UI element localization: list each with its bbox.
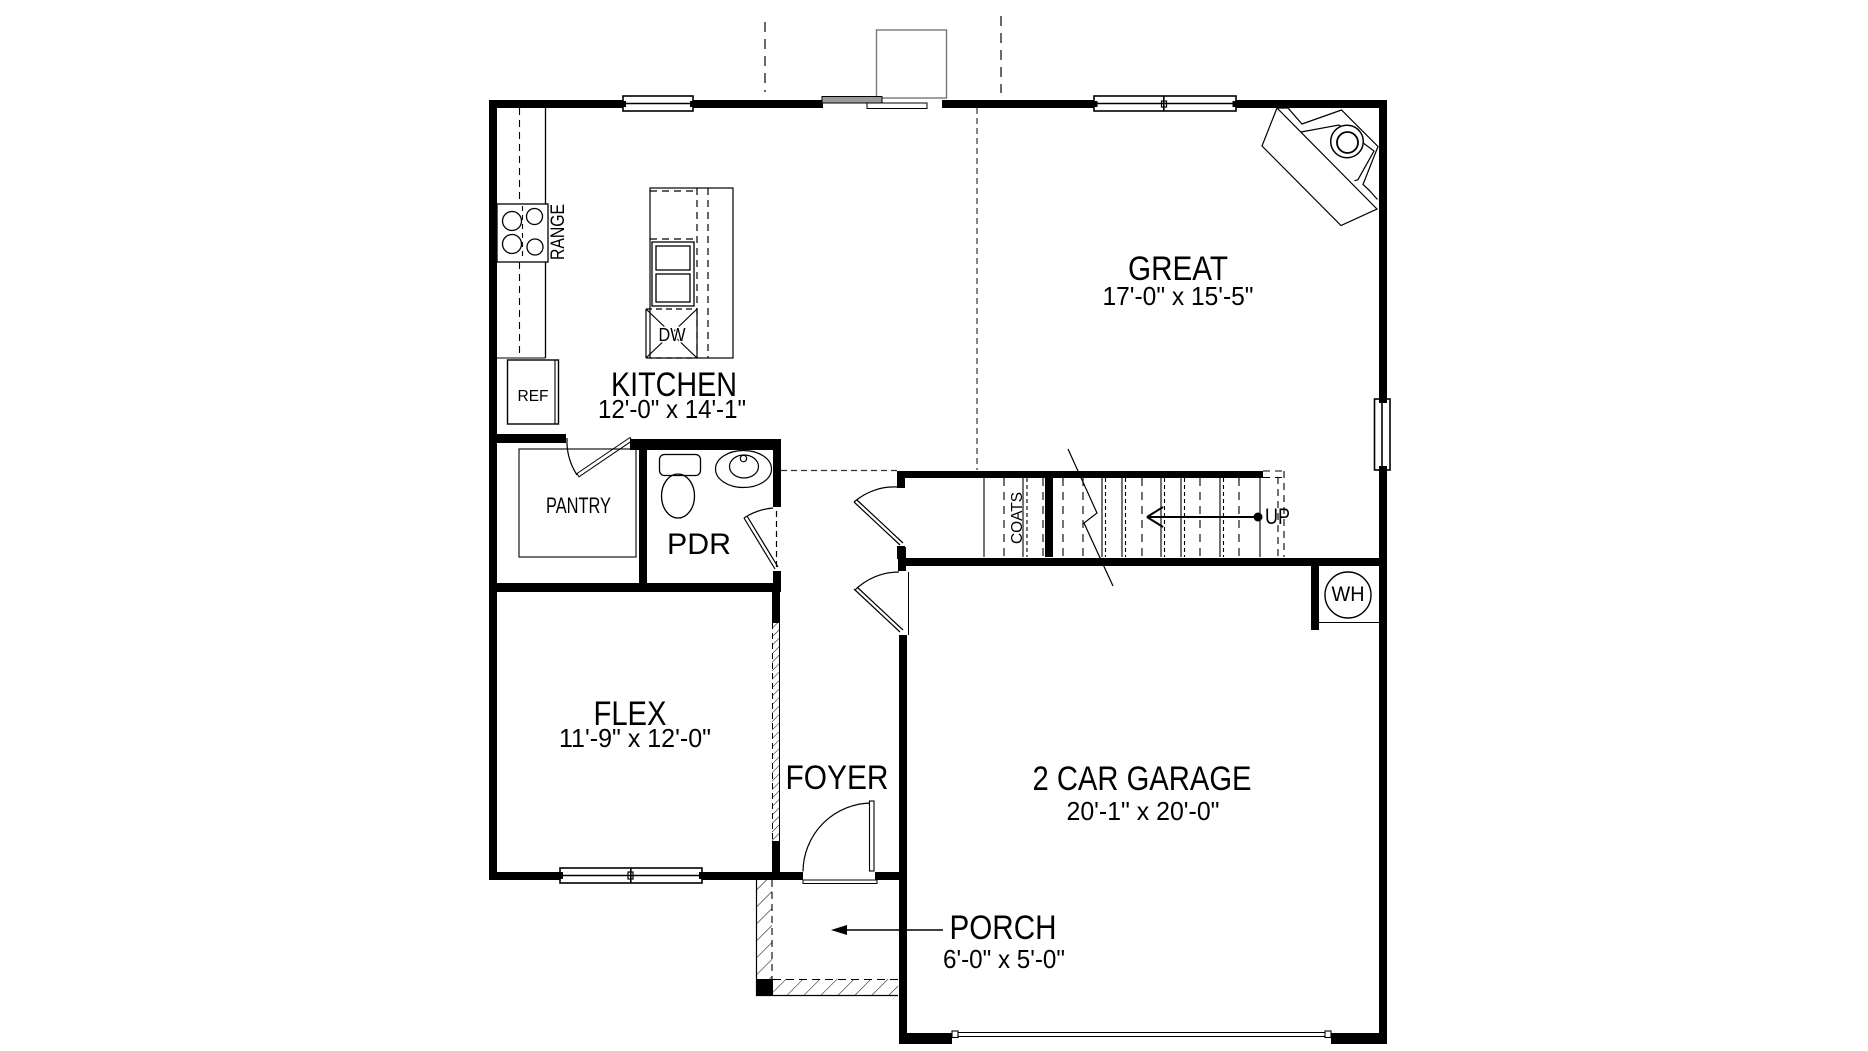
svg-text:PANTRY: PANTRY — [546, 493, 611, 518]
svg-text:17'-0" x 15'-5": 17'-0" x 15'-5" — [1103, 281, 1254, 311]
svg-text:PDR: PDR — [667, 528, 731, 561]
svg-text:20'-1" x 20'-0": 20'-1" x 20'-0" — [1067, 796, 1220, 826]
svg-text:COATS: COATS — [1009, 492, 1026, 544]
svg-text:11'-9" x 12'-0": 11'-9" x 12'-0" — [559, 723, 711, 753]
svg-text:WH: WH — [1332, 583, 1365, 606]
svg-text:RANGE: RANGE — [548, 204, 569, 260]
svg-text:12'-0" x 14'-1": 12'-0" x 14'-1" — [598, 394, 746, 424]
svg-text:REF: REF — [518, 388, 549, 405]
svg-text:PORCH: PORCH — [950, 909, 1057, 947]
svg-text:6'-0" x 5'-0": 6'-0" x 5'-0" — [943, 944, 1065, 974]
svg-text:DW: DW — [659, 325, 686, 345]
svg-text:UP: UP — [1265, 504, 1290, 529]
svg-text:2 CAR GARAGE: 2 CAR GARAGE — [1033, 760, 1252, 798]
svg-text:FOYER: FOYER — [786, 759, 889, 797]
